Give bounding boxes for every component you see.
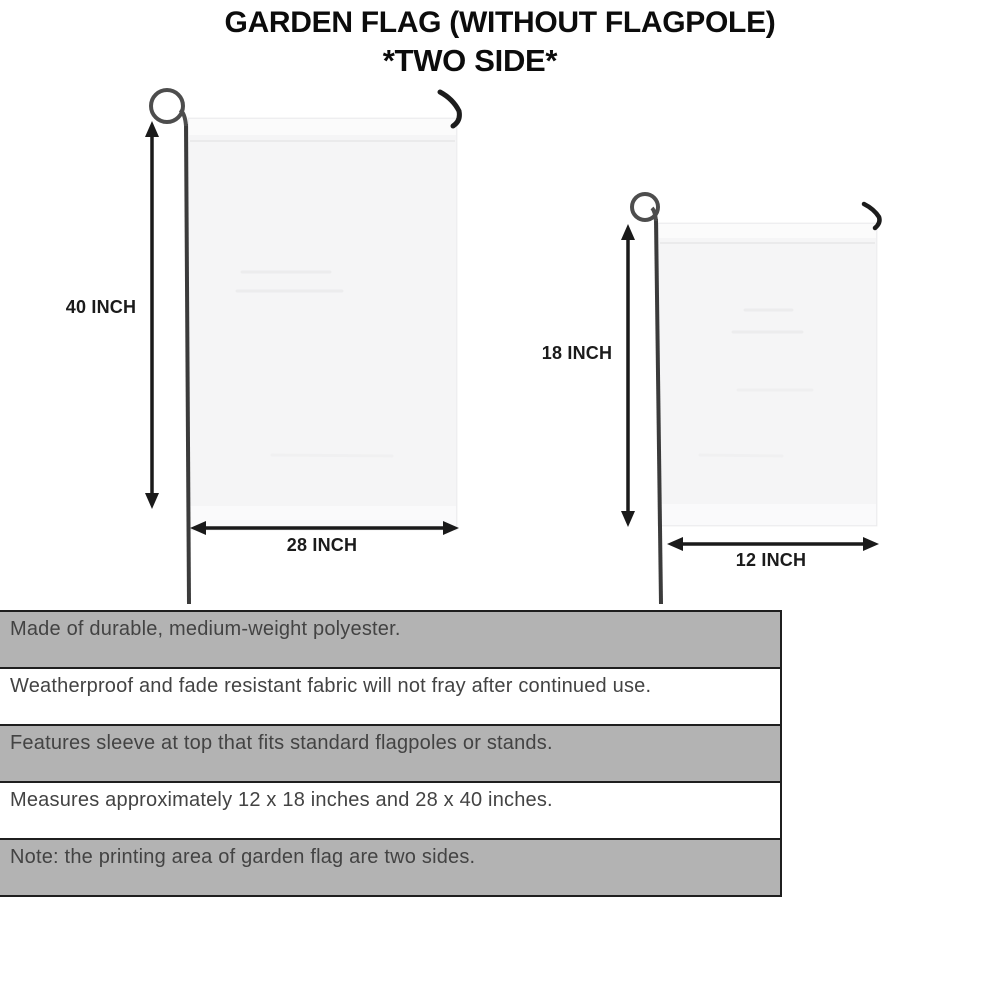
feature-row: Features sleeve at top that fits standar…	[0, 726, 780, 783]
small-flag-bottom-hem	[659, 504, 876, 525]
large-flag-width-label: 28 INCH	[252, 535, 392, 556]
feature-row: Made of durable, medium-weight polyester…	[0, 612, 780, 669]
small-flag-group	[621, 194, 880, 604]
small-flag-height-label: 18 INCH	[507, 343, 647, 364]
large-flag-height-label: 40 INCH	[31, 297, 171, 318]
feature-row: Measures approximately 12 x 18 inches an…	[0, 783, 780, 840]
large-flagpole-loop	[151, 90, 183, 122]
small-flag-height-arrow	[621, 224, 635, 527]
feature-row: Note: the printing area of garden flag a…	[0, 840, 780, 895]
large-flag-sleeve	[189, 119, 456, 135]
large-flag-group	[145, 90, 459, 604]
small-flag-width-label: 12 INCH	[701, 550, 841, 571]
small-flag-width-arrow	[667, 537, 879, 551]
feature-table: Made of durable, medium-weight polyester…	[0, 610, 782, 897]
large-flag-bottom-hem	[189, 506, 456, 529]
large-flagpole-loop-join	[180, 110, 186, 126]
small-flag-sleeve	[659, 224, 876, 238]
small-flag-canvas	[658, 223, 877, 526]
feature-row: Weatherproof and fade resistant fabric w…	[0, 669, 780, 726]
large-flag-canvas	[188, 118, 457, 530]
